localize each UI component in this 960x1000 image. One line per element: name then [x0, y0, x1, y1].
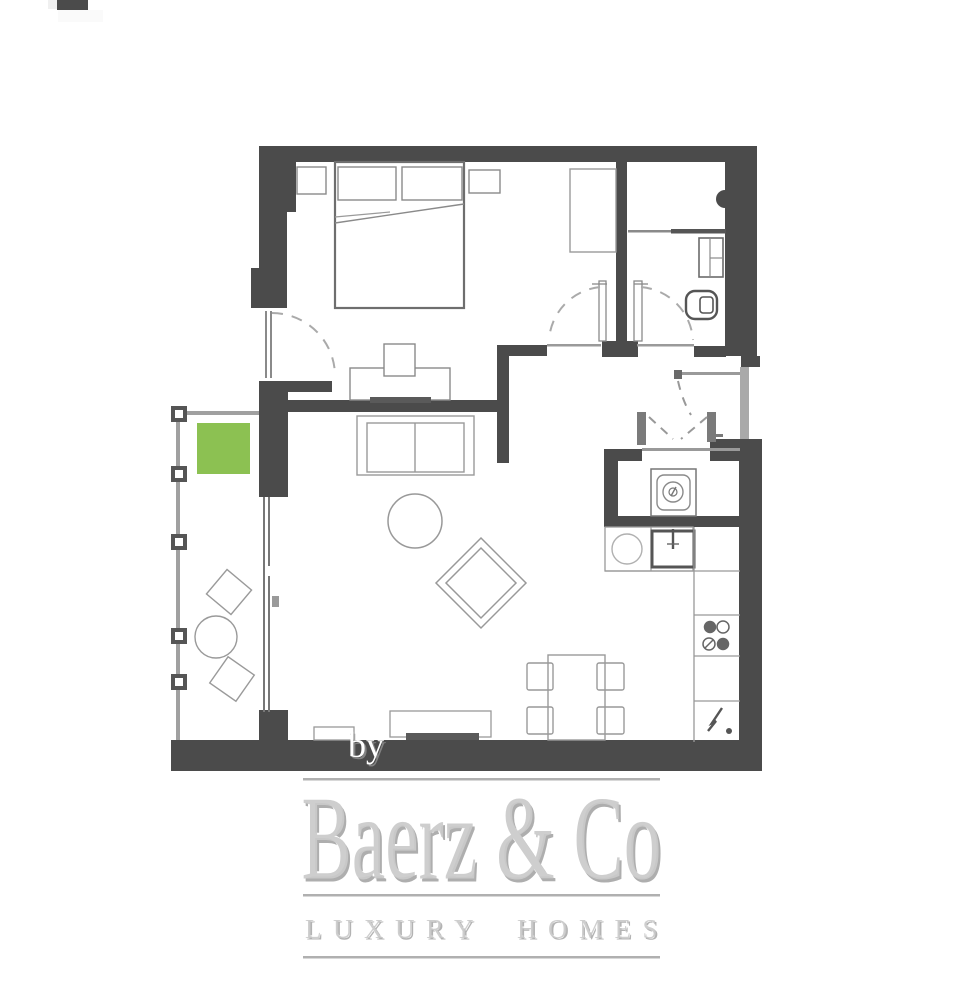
svg-text:LUXURY HOMES: LUXURY HOMES [305, 914, 669, 944]
svg-text:by: by [348, 725, 384, 765]
svg-text:Baerz & Co: Baerz & Co [302, 772, 662, 905]
